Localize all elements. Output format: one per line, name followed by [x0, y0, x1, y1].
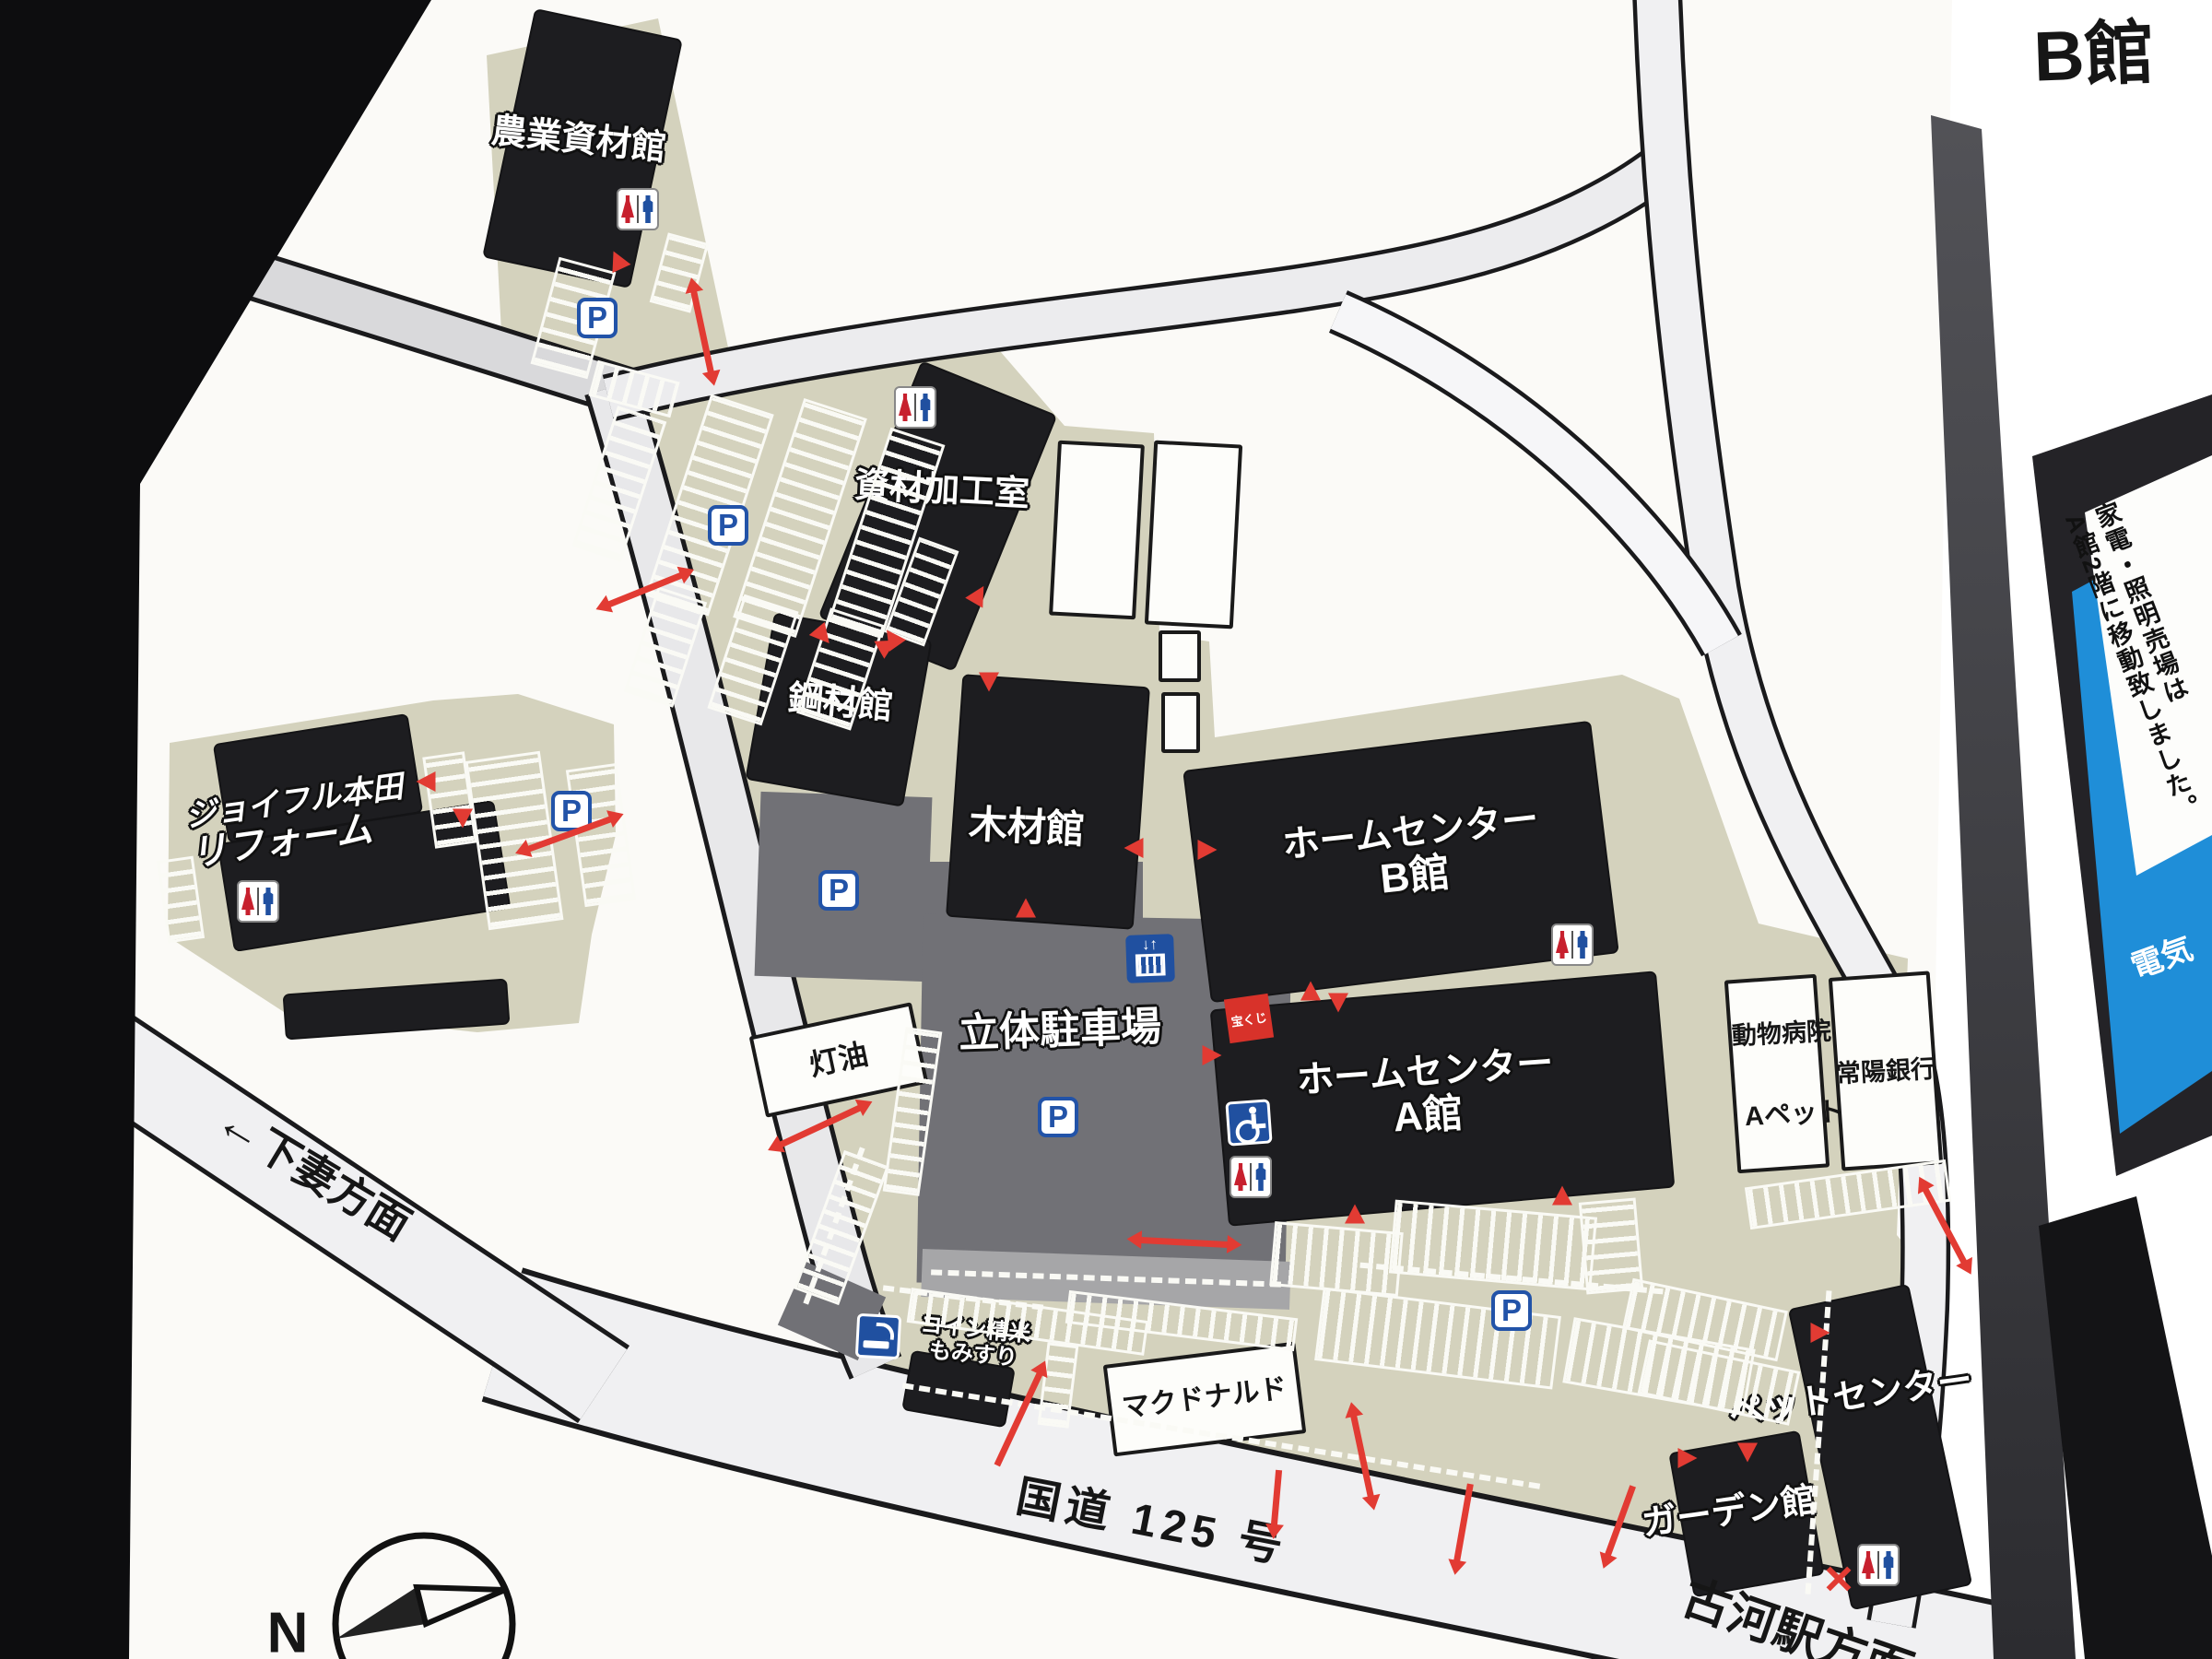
entrance-arrow-icon [1124, 838, 1144, 858]
label-compass-north: N [267, 1600, 309, 1659]
restroom-icon [617, 188, 659, 230]
entrance-arrow-icon [453, 809, 473, 829]
label-wood: 木材館 [968, 802, 1086, 852]
parking-icon: P [818, 870, 859, 911]
entrance-arrow-icon [1300, 982, 1321, 1001]
parking-icon: P [1038, 1097, 1078, 1137]
white-structure [1145, 441, 1242, 629]
label-parking-structure: 立体駐車場 [958, 1005, 1162, 1057]
label-a-pet: Aペット [1744, 1098, 1845, 1134]
label-joyo-bank: 常陽銀行 [1835, 1055, 1935, 1089]
white-structure [1049, 441, 1145, 620]
elevator-icon: ↓↑ [1125, 934, 1175, 983]
white-structure [1161, 692, 1200, 753]
restroom-icon [1230, 1156, 1272, 1198]
restroom-icon [894, 386, 936, 429]
label-homecenter-a: ホームセンター A館 [1296, 1042, 1559, 1147]
closed-x-icon [1824, 1564, 1853, 1594]
entrance-arrow-icon [1198, 840, 1218, 860]
wheelchair-accessible-icon [1225, 1099, 1272, 1146]
entrance-arrow-icon [1203, 1045, 1222, 1065]
entrance-arrow-icon [1552, 1186, 1572, 1206]
entrance-arrow-icon [1016, 899, 1036, 918]
white-structure [1159, 630, 1201, 682]
lottery-icon: 宝くじ [1224, 994, 1274, 1043]
restroom-icon [237, 880, 279, 923]
entrance-arrow-icon [1737, 1443, 1758, 1463]
entrance-arrow-icon [979, 673, 999, 692]
parking-icon: P [708, 505, 748, 546]
entrance-arrow-icon [1678, 1448, 1698, 1468]
building-animal-hospital [1724, 974, 1830, 1173]
entrance-arrow-icon [1345, 1205, 1365, 1224]
restroom-icon [1857, 1544, 1900, 1586]
entrance-arrow-icon [1811, 1323, 1830, 1343]
smoking-area-icon [855, 1313, 901, 1359]
parking-icon: P [577, 298, 618, 338]
label-animal-hospital: 動物病院 [1731, 1018, 1831, 1052]
restroom-icon [1551, 924, 1594, 966]
entrance-arrow-icon [1328, 994, 1348, 1013]
parking-stalls-row [1269, 1221, 1404, 1297]
compass-rose-icon [335, 1535, 512, 1659]
store-guide-map-photo: 農業資材館 資材加工室 鋼材館 木材館 ホームセンター B館 ホームセンター A… [0, 0, 2212, 1659]
b-kan-panel-label: B館 [2032, 13, 2156, 98]
entrance-arrow-icon [417, 771, 436, 792]
parking-icon: P [1491, 1290, 1532, 1331]
